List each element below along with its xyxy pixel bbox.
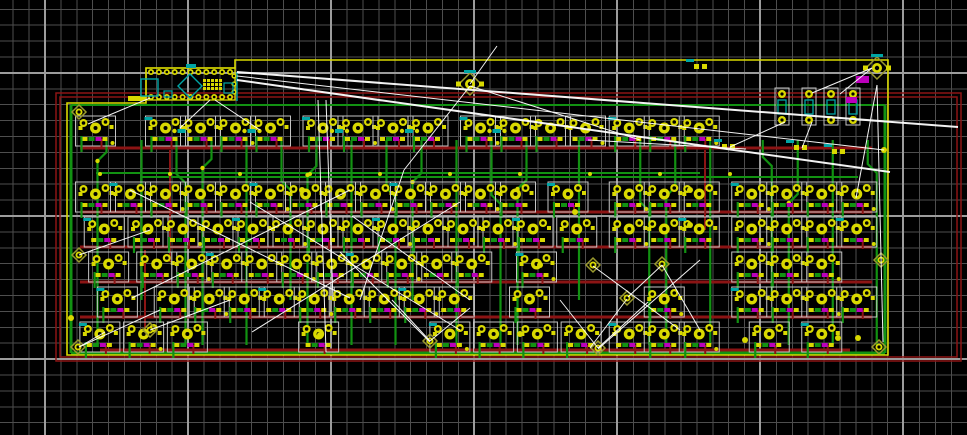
led-footprint[interactable] xyxy=(172,129,191,133)
led-footprint[interactable] xyxy=(330,129,349,133)
via[interactable] xyxy=(68,315,74,321)
via[interactable] xyxy=(835,335,841,341)
via[interactable] xyxy=(537,262,543,268)
via[interactable] xyxy=(317,332,323,338)
pcb-drawing-canvas[interactable] xyxy=(0,0,967,435)
led-footprint[interactable] xyxy=(400,129,419,133)
via[interactable] xyxy=(517,331,523,337)
via[interactable] xyxy=(572,209,578,215)
via[interactable] xyxy=(687,187,693,193)
led-footprint[interactable] xyxy=(487,129,506,133)
via[interactable] xyxy=(687,222,693,228)
via[interactable] xyxy=(742,337,748,343)
pcb-editor-viewport[interactable] xyxy=(0,0,967,435)
via[interactable] xyxy=(299,187,305,193)
magenta-pad xyxy=(846,97,857,103)
via[interactable] xyxy=(855,335,861,341)
